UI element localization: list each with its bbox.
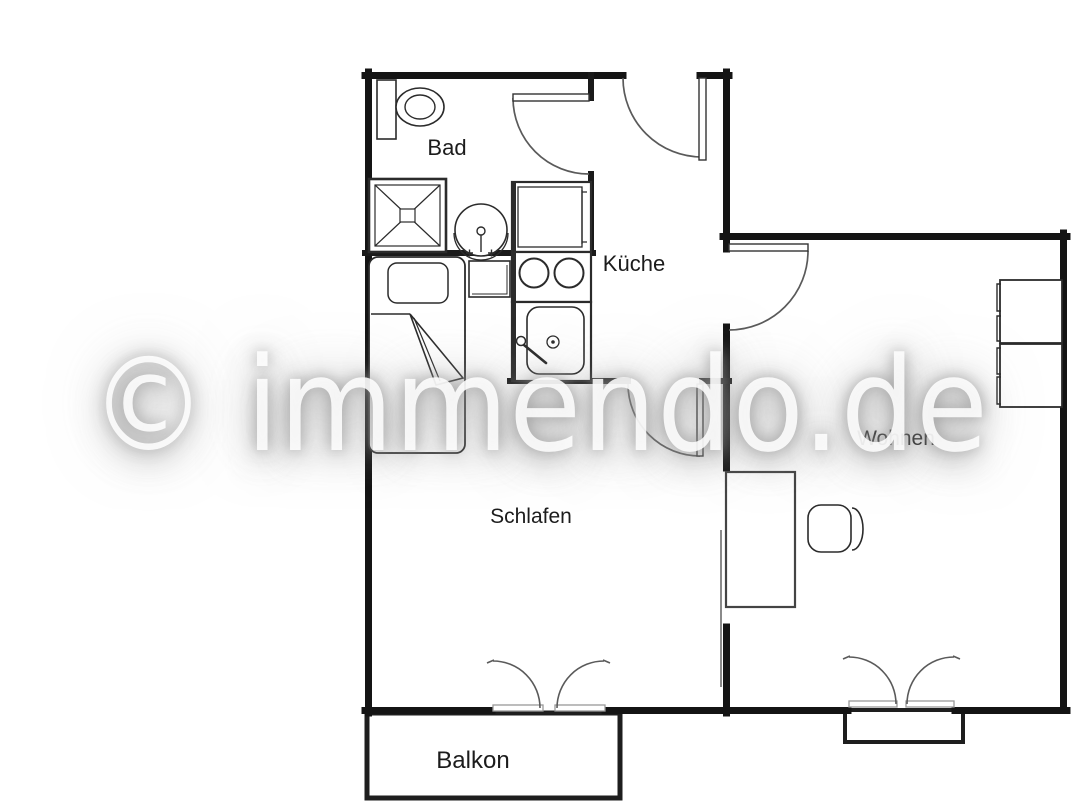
bedroom-balcony-door [487, 660, 610, 711]
nightstand [469, 261, 510, 297]
floor-plan-canvas: Bad Küche Schlafen Wohnen Balkon © immen… [0, 0, 1080, 810]
living-room-balcony-door-arcs [843, 656, 960, 704]
bedroom-furniture [369, 257, 510, 453]
walls [365, 72, 1067, 713]
kitchen-fixtures [512, 182, 591, 381]
bedroom-balcony-door-arcs [487, 660, 610, 708]
entrance-door-arc [623, 78, 702, 157]
room-label-bad: Bad [427, 135, 466, 160]
bathroom-door [513, 94, 589, 174]
floor-plan-drawing: Bad Küche Schlafen Wohnen Balkon [0, 0, 1080, 810]
bathroom-door-leaf [513, 94, 589, 101]
room-label-wohnen: Wohnen [857, 427, 935, 450]
office-chair [808, 505, 863, 552]
living-room-balcony-door-sill-right [906, 701, 954, 707]
room-label-balkon: Balkon [436, 747, 509, 774]
terrace-wohnen [845, 710, 963, 742]
bathroom-fixtures [369, 80, 508, 260]
desk [726, 472, 795, 607]
toilet [377, 80, 444, 139]
shower [369, 179, 446, 252]
living-room-balcony-door [843, 656, 960, 707]
bedroom-door-leaf [697, 384, 703, 456]
stove [512, 252, 591, 302]
living-room-balcony-door-sill-left [849, 701, 897, 707]
bedroom-door-arc [628, 384, 700, 456]
washbasin [454, 204, 508, 260]
outer-walls [365, 72, 1067, 713]
bathroom-door-arc [513, 98, 589, 174]
pillow [388, 263, 448, 303]
room-label-kueche: Küche [603, 251, 665, 276]
refrigerator [512, 182, 591, 252]
bed [369, 257, 465, 453]
sofa [997, 280, 1062, 407]
living-room-door-leaf [729, 244, 808, 251]
kitchen-sink [512, 302, 591, 381]
living-room-door-arc [729, 251, 808, 330]
bedroom-door [628, 384, 703, 456]
living-room-door [729, 244, 808, 330]
room-label-schlafen: Schlafen [490, 505, 572, 528]
entrance-door [623, 78, 706, 160]
bedroom-balcony-door-sill-left [493, 705, 543, 711]
bedroom-balcony-door-sill-right [555, 705, 605, 711]
entrance-door-leaf [699, 78, 706, 160]
